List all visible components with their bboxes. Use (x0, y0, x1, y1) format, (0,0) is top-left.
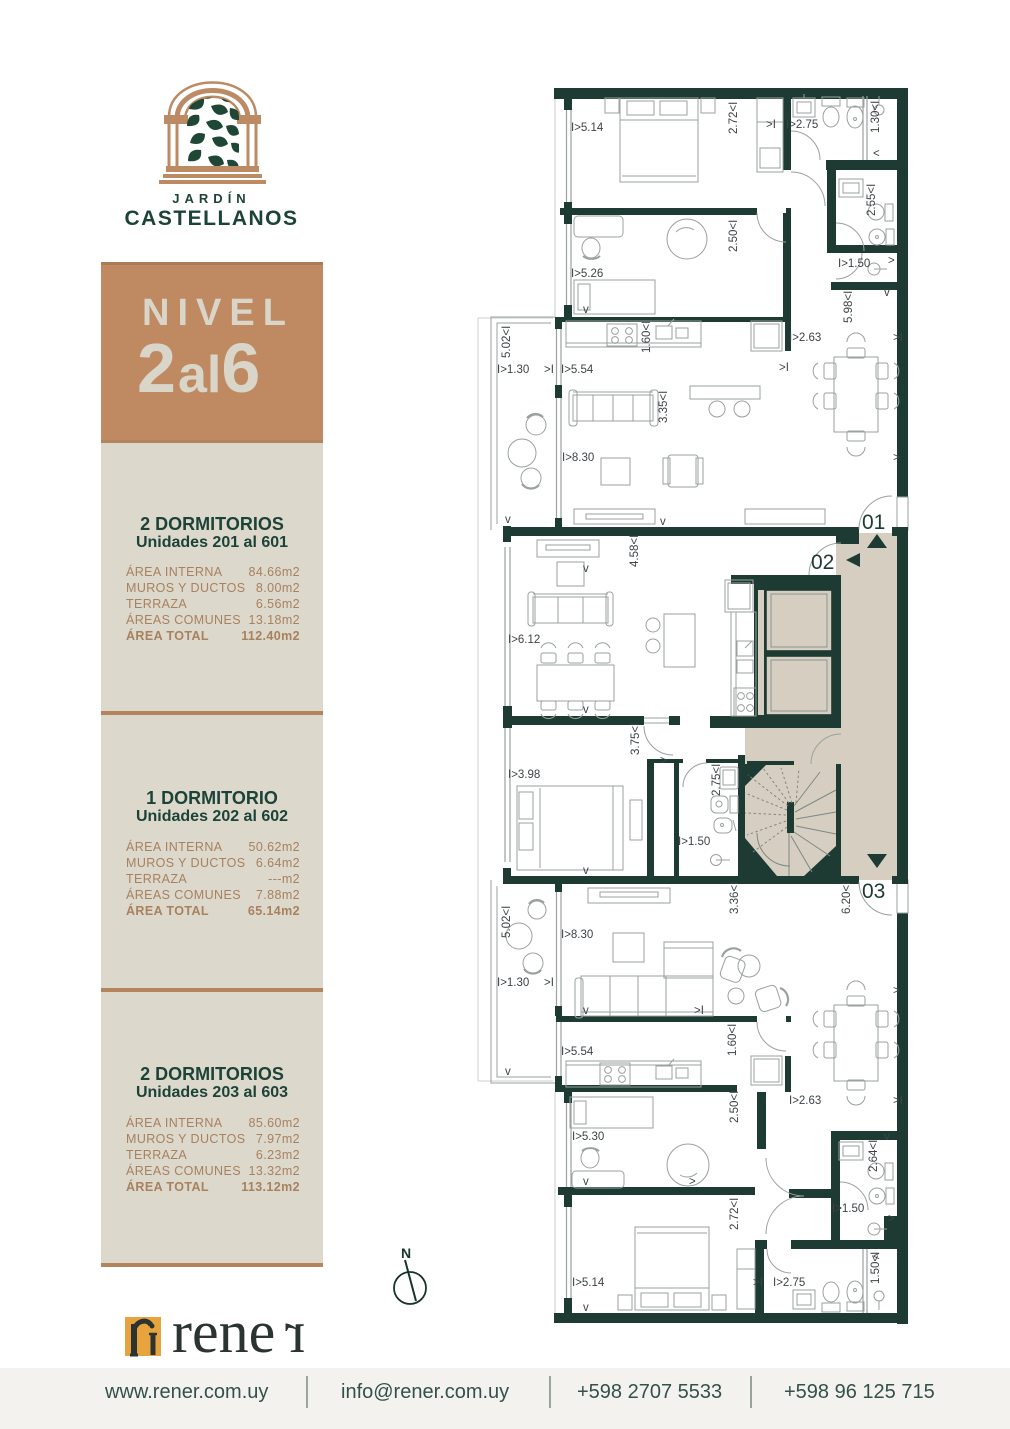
svg-text:v: v (583, 1302, 589, 1314)
svg-text:>I: >I (544, 364, 554, 376)
svg-text:I>1.50: I>1.50 (838, 258, 870, 270)
svg-text:v: v (884, 1131, 890, 1143)
svg-text:>: > (689, 1176, 696, 1188)
svg-text:3.35<I: 3.35<I (658, 391, 670, 423)
svg-text:>I: >I (753, 1277, 763, 1289)
svg-text:3.36<I: 3.36<I (729, 882, 741, 914)
svg-text:5.02<I: 5.02<I (501, 326, 513, 358)
svg-text:I>2.63: I>2.63 (789, 332, 821, 344)
svg-text:2.75<I: 2.75<I (711, 764, 723, 796)
svg-text:I>1.30: I>1.30 (497, 364, 529, 376)
svg-text:>I: >I (694, 1005, 704, 1017)
svg-text:<: < (873, 148, 880, 160)
svg-text:v: v (505, 514, 511, 526)
svg-text:>: > (888, 255, 895, 267)
svg-text:>I: >I (893, 1095, 903, 1107)
svg-text:5.02<I: 5.02<I (501, 906, 513, 938)
svg-text:>: > (888, 1213, 895, 1225)
svg-text:I>5.54: I>5.54 (561, 364, 594, 376)
svg-text:>I: >I (893, 332, 903, 344)
svg-text:1.30<I: 1.30<I (870, 101, 882, 133)
svg-text:2.72<I: 2.72<I (729, 1198, 741, 1230)
svg-text:2.50<I: 2.50<I (728, 220, 740, 252)
svg-text:v: v (583, 1005, 589, 1017)
svg-text:I>2.63: I>2.63 (789, 1095, 821, 1107)
svg-text:2.50<I: 2.50<I (729, 1091, 741, 1123)
svg-text:v: v (583, 1176, 589, 1188)
svg-text:6.20<I: 6.20<I (841, 882, 853, 914)
svg-text:1.60<I: 1.60<I (641, 321, 653, 353)
svg-text:I>5.30: I>5.30 (572, 1131, 604, 1143)
svg-text:v: v (660, 516, 666, 528)
svg-text:>: > (893, 985, 900, 997)
svg-text:I>5.14: I>5.14 (571, 122, 604, 134)
svg-text:1.60<I: 1.60<I (727, 1024, 739, 1056)
svg-text:>I: >I (766, 119, 776, 131)
svg-text:v: v (884, 287, 890, 299)
svg-text:I>1.30: I>1.30 (497, 977, 529, 989)
svg-text:5.98<I: 5.98<I (843, 291, 855, 323)
svg-text:I>2.75: I>2.75 (786, 119, 818, 131)
svg-text:I>6.12: I>6.12 (508, 634, 540, 646)
svg-text:>I: >I (544, 977, 554, 989)
svg-text:I>5.54: I>5.54 (561, 1046, 594, 1058)
svg-text:I>1.50: I>1.50 (832, 1203, 864, 1215)
svg-text:3.75<I: 3.75<I (630, 723, 642, 755)
svg-text:I>5.26: I>5.26 (571, 268, 603, 280)
svg-text:v: v (505, 1066, 511, 1078)
svg-text:I>3.98: I>3.98 (508, 769, 540, 781)
svg-text:2.64<I: 2.64<I (868, 1140, 880, 1172)
svg-text:03: 03 (862, 880, 885, 903)
svg-text:02: 02 (811, 551, 834, 574)
svg-text:I>8.30: I>8.30 (561, 929, 593, 941)
svg-text:2.55<I: 2.55<I (866, 184, 878, 216)
svg-text:>: > (893, 452, 900, 464)
svg-text:I>8.30: I>8.30 (562, 452, 594, 464)
svg-text:v: v (583, 704, 589, 716)
svg-text:v: v (583, 304, 589, 316)
svg-text:I>1.50: I>1.50 (678, 836, 710, 848)
svg-text:I>2.75: I>2.75 (773, 1277, 805, 1289)
svg-text:01: 01 (862, 511, 885, 534)
svg-text:<: < (873, 1251, 880, 1263)
svg-text:v: v (583, 563, 589, 575)
svg-text:>I: >I (779, 362, 789, 374)
svg-text:I>5.14: I>5.14 (572, 1277, 605, 1289)
svg-text:v: v (583, 865, 589, 877)
svg-text:>: > (660, 755, 667, 767)
svg-text:4.58<I: 4.58<I (629, 535, 641, 567)
svg-text:2.72<I: 2.72<I (728, 102, 740, 134)
